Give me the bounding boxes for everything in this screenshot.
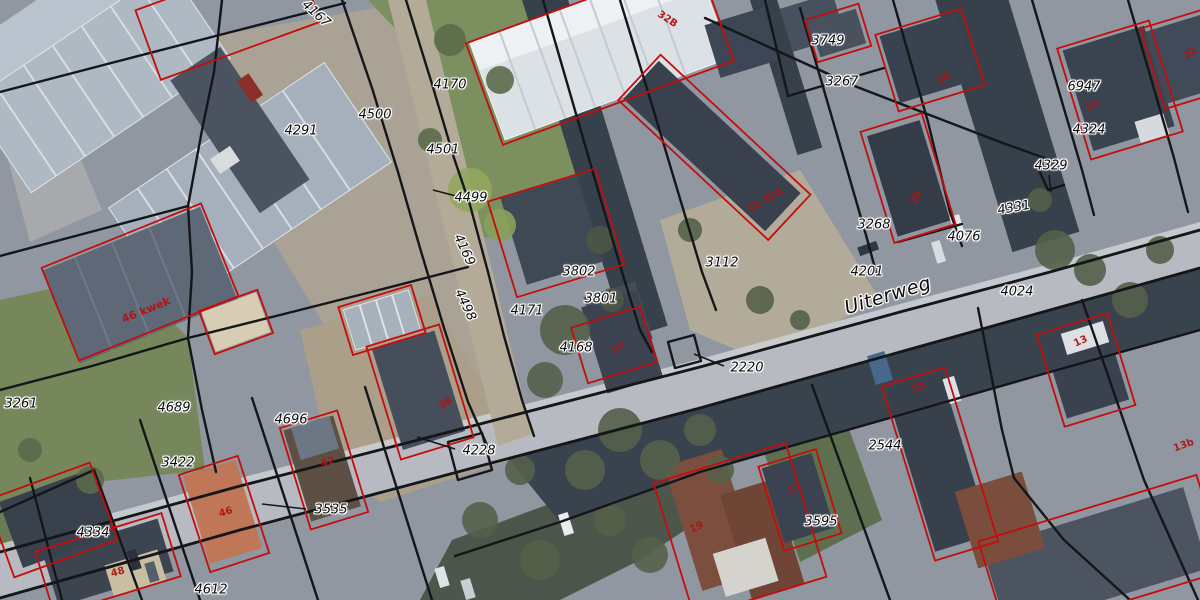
map-canvas[interactable]: 4167417045004291450144994169449841713802… bbox=[0, 0, 1200, 600]
boat bbox=[931, 240, 946, 264]
aerial-photo-layer bbox=[0, 0, 1200, 600]
